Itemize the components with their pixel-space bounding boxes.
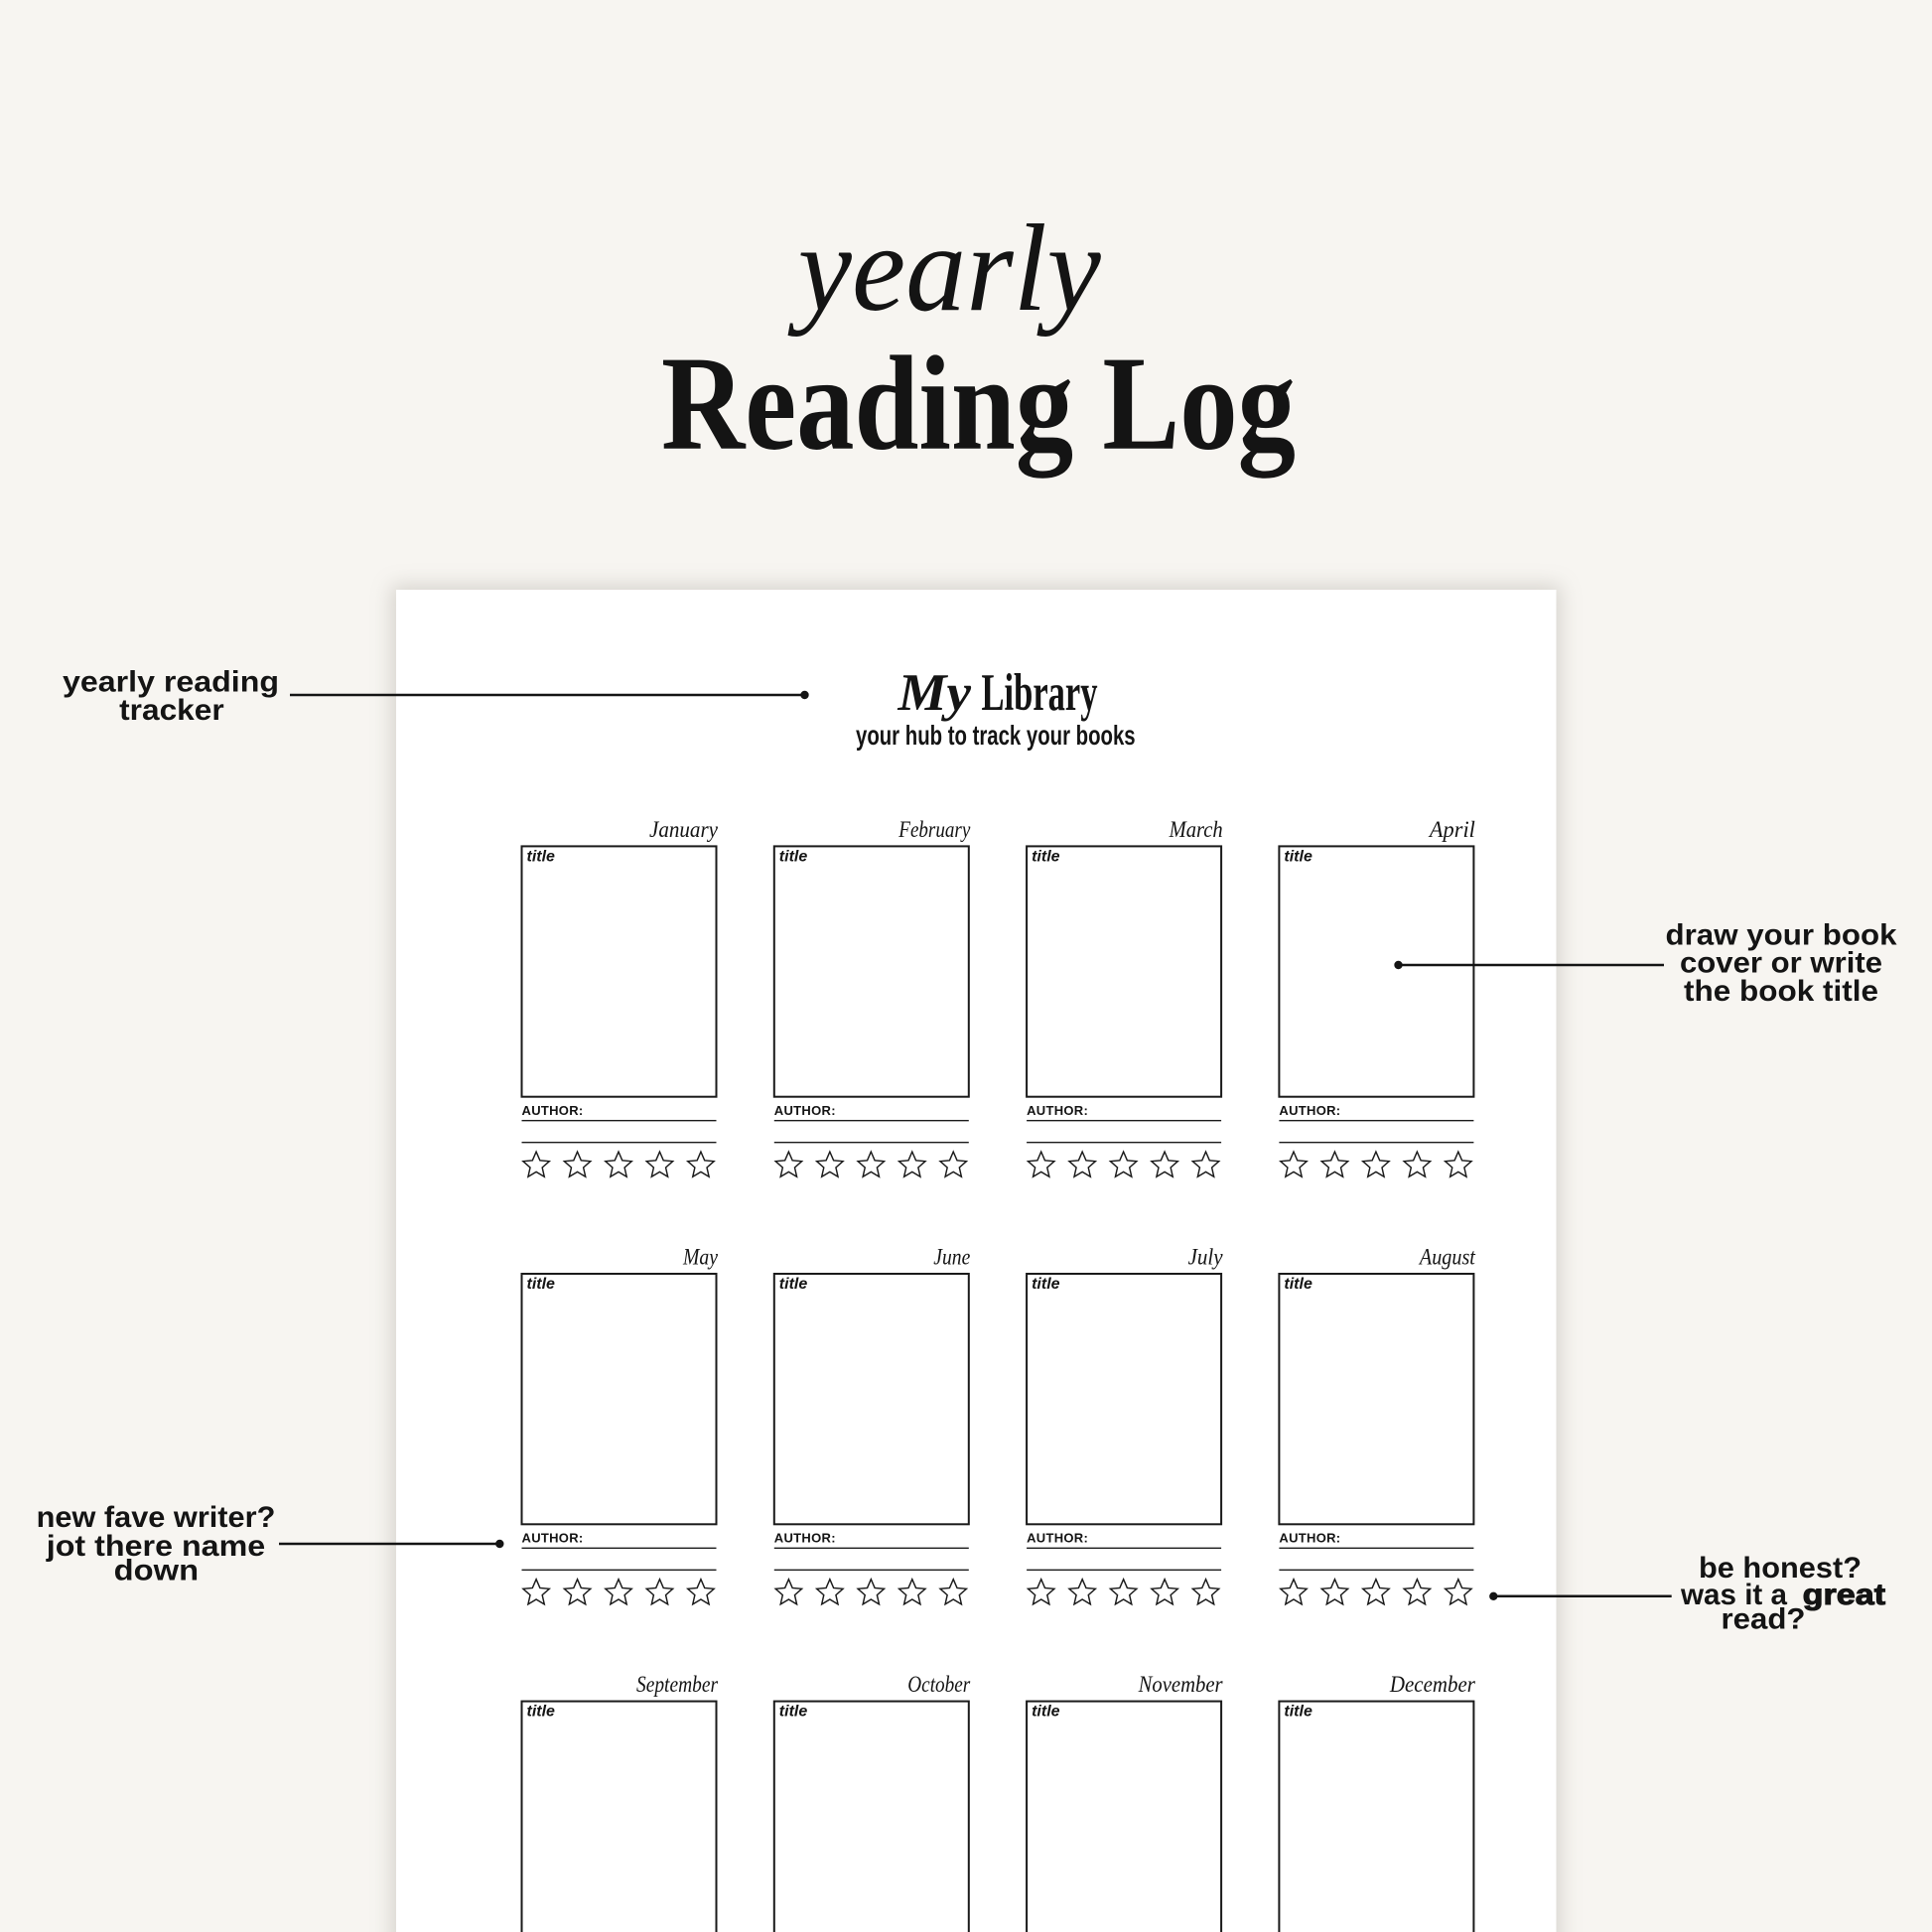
svg-text:the book title: the book title [1684,975,1878,1008]
svg-text:Library: Library [982,664,1098,722]
svg-text:AUTHOR:: AUTHOR: [522,1103,584,1118]
svg-text:Reading Log: Reading Log [661,330,1296,479]
svg-text:title: title [527,1704,556,1721]
svg-text:title: title [1032,1704,1060,1721]
svg-text:AUTHOR:: AUTHOR: [1027,1531,1088,1546]
svg-text:AUTHOR:: AUTHOR: [522,1531,584,1546]
svg-text:title: title [1284,1704,1312,1721]
svg-text:tracker: tracker [119,694,224,727]
svg-text:title: title [1284,1276,1312,1293]
svg-text:April: April [1428,817,1475,842]
svg-text:title: title [779,848,808,865]
svg-text:March: March [1169,817,1223,842]
svg-text:July: July [1188,1245,1224,1270]
svg-text:February: February [897,817,970,842]
svg-text:November: November [1138,1672,1224,1697]
svg-text:October: October [907,1672,971,1697]
svg-text:down: down [114,1555,199,1587]
svg-text:title: title [779,1704,808,1721]
svg-text:August: August [1418,1245,1475,1270]
svg-text:AUTHOR:: AUTHOR: [1279,1531,1340,1546]
svg-text:AUTHOR:: AUTHOR: [1279,1103,1340,1118]
svg-text:June: June [933,1245,970,1270]
svg-text:title: title [527,1276,556,1293]
svg-text:title: title [527,848,556,865]
svg-text:title: title [779,1276,808,1293]
svg-text:December: December [1389,1672,1476,1697]
svg-text:My: My [897,664,971,722]
svg-text:September: September [636,1672,719,1697]
svg-text:title: title [1032,1276,1060,1293]
svg-text:title: title [1284,848,1312,865]
svg-text:your hub to track your books: your hub to track your books [856,720,1136,751]
svg-text:read?: read? [1722,1602,1806,1635]
svg-text:January: January [649,817,719,842]
svg-text:May: May [682,1245,719,1270]
svg-text:great: great [1803,1579,1886,1611]
svg-text:AUTHOR:: AUTHOR: [1027,1103,1088,1118]
svg-text:yearly: yearly [787,201,1101,338]
svg-text:title: title [1032,848,1060,865]
svg-text:AUTHOR:: AUTHOR: [774,1103,836,1118]
svg-text:AUTHOR:: AUTHOR: [774,1531,836,1546]
